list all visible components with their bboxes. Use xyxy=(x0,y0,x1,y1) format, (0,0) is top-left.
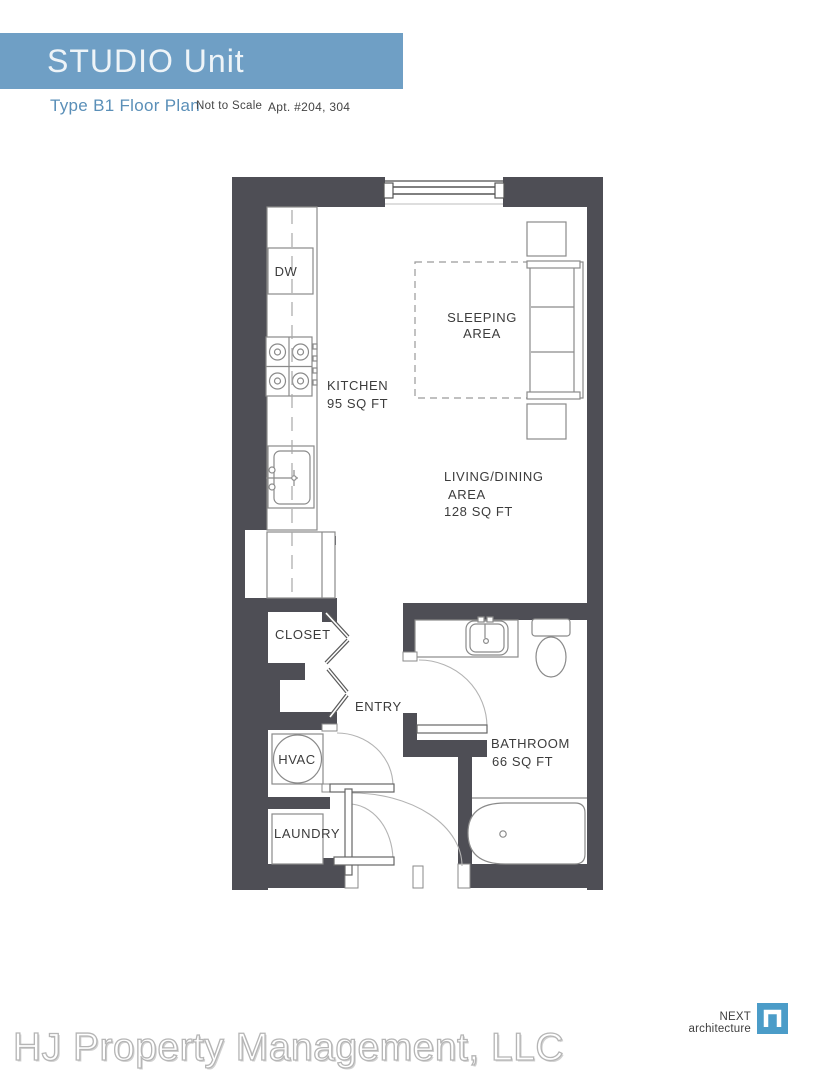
pi-logo-icon xyxy=(757,1003,788,1034)
floor-plan: DW KITCHEN 95 SQ FT SLEEPING AREA LIVING… xyxy=(0,0,835,1080)
bathroom-sink-icon xyxy=(466,617,508,655)
flyer-page: STUDIO Unit Type B1 Floor Plan Not to Sc… xyxy=(0,0,835,1080)
bathtub-icon xyxy=(468,803,585,864)
living-label-2: AREA xyxy=(448,487,486,502)
kitchen-cabinet xyxy=(267,532,335,598)
hvac-door-leaf xyxy=(330,784,394,792)
side-table-top xyxy=(527,222,566,256)
sofa xyxy=(527,261,583,399)
bathroom-label: BATHROOM xyxy=(491,736,570,751)
closet-label: CLOSET xyxy=(275,627,331,642)
bathroom-door-leaf xyxy=(417,725,487,733)
window-jamb-right xyxy=(495,183,504,198)
kitchen-label: KITCHEN xyxy=(327,378,388,393)
entry-label: ENTRY xyxy=(355,699,402,714)
living-label-1: LIVING/DINING xyxy=(444,469,544,484)
hvac-jamb-mark xyxy=(322,724,337,731)
toilet-icon xyxy=(532,619,570,677)
entry-jamb-right xyxy=(458,864,470,888)
sleeping-label-1: SLEEPING xyxy=(447,310,517,325)
entry-door-arc xyxy=(352,793,462,866)
architect-logo xyxy=(757,1003,788,1034)
kitchen-area-label: 95 SQ FT xyxy=(327,396,388,411)
bathroom-area-label: 66 SQ FT xyxy=(492,754,553,769)
entry-bifold-icon xyxy=(328,669,347,717)
dishwasher-label: DW xyxy=(275,264,298,279)
living-area-label: 128 SQ FT xyxy=(444,504,513,519)
laundry-label: LAUNDRY xyxy=(274,826,340,841)
hvac-label: HVAC xyxy=(278,752,316,767)
window-jamb-left xyxy=(384,183,393,198)
entry-threshold xyxy=(413,866,423,888)
architect-credit: NEXT architecture xyxy=(655,1011,751,1035)
bathroom-door-arc xyxy=(419,660,487,727)
hvac-door-arc xyxy=(337,733,393,786)
stove-icon xyxy=(266,337,317,396)
sleeping-label-2: AREA xyxy=(463,326,501,341)
laundry-door-leaf xyxy=(334,857,394,865)
laundry-door-arc xyxy=(349,804,393,859)
company-name: HJ Property Management, LLC xyxy=(13,1026,564,1070)
side-table-bottom xyxy=(527,404,566,439)
window xyxy=(384,177,504,207)
bath-door-jamb xyxy=(403,652,417,661)
kitchen-sink-icon xyxy=(266,446,314,508)
